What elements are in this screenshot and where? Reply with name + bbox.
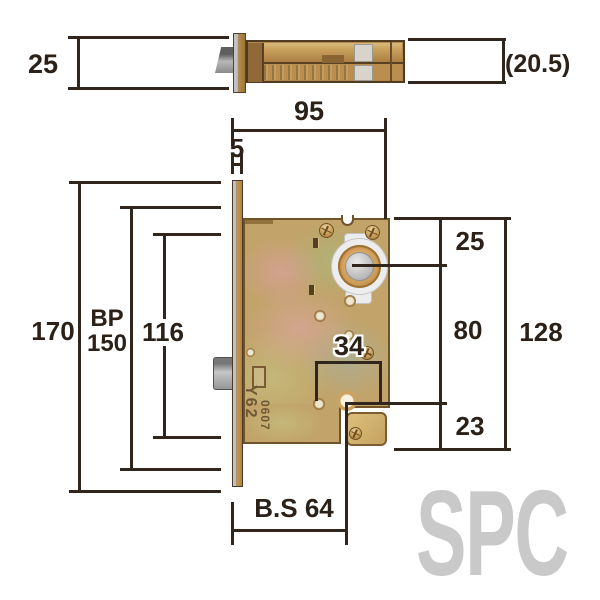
dim-backset-tick-left [231,502,234,545]
dim-right-tick-bottom [394,448,511,451]
dim-bp-tick-bottom [120,468,221,471]
dim-hub-center-line [346,402,447,405]
dim-right-outer-line [504,217,507,451]
dim-hole-spacing-label: 34 [326,332,372,360]
dim-total-height-label: 170 [29,318,77,345]
faceplate-front-view [232,180,243,487]
lock-dimension-diagram: 25 (20.5) [0,0,600,600]
dim-cylinder-center-line [352,264,447,267]
body-white-segment-top [354,44,373,62]
brand-watermark: SPC [416,463,568,600]
dim-backset-drop-line [345,402,348,545]
dim-depth-line [232,129,387,132]
body-end-seam [390,42,392,81]
dim-body-thickness-label: (20.5) [505,51,585,77]
body-step-notch [322,55,344,63]
dim-depth-tick-right [384,118,387,219]
dim-case-height-tick-top [153,233,221,236]
dim-body-thickness-ext-bottom [408,81,506,84]
dim-plate-height-label: 25 [20,50,66,78]
pin-hole-1 [344,295,356,307]
dim-bp-label: BP [84,306,130,331]
stamp-model-text: Y62 [241,385,259,419]
dim-plate-height-ext-bottom [68,87,229,90]
stamp-serial-text: 0607 [258,400,272,431]
dim-top-to-cylinder-label: 25 [448,228,492,255]
dim-backset-line [232,529,347,532]
dim-right-tick-top [394,217,511,220]
dim-hub-to-bottom-label: 23 [448,413,492,440]
body-left-block [248,43,264,82]
square-cutout-upper [313,238,319,248]
dim-plate-height-line [77,36,80,90]
square-cutout-lower [309,285,315,295]
dim-right-span-label: 128 [512,319,570,346]
dim-bp-value: 150 [84,331,130,356]
pin-hole-2 [314,310,326,322]
dim-depth-label: 95 [283,97,335,125]
latch-bolt-front-view [213,357,234,390]
body-white-segment-bottom [354,65,373,81]
dim-total-height-line [78,182,81,493]
pin-hole-left [246,348,255,357]
dim-case-height-label: 116 [138,319,188,346]
case-top-lip [245,220,273,224]
dim-plate-height-ext-top [68,36,229,39]
dim-cylinder-to-hub-label: 80 [446,317,490,344]
dim-total-height-tick-bottom [69,490,221,493]
dim-right-inner-line [439,217,442,451]
dim-bp-line [130,206,133,471]
dim-hole-spacing-line [316,361,382,364]
faceplate-top-view [233,33,246,93]
dim-hole-spacing-tick-left [315,361,318,401]
lock-body-top-view [246,40,405,83]
dim-total-height-tick-top [69,181,221,184]
dim-hole-spacing-tick-right [379,361,382,405]
dim-bp-tick-top [120,206,221,209]
dim-offset-crossbar [231,163,243,166]
dim-case-height-tick-bottom [153,436,221,439]
dim-body-thickness-ext-top [408,38,506,41]
body-seam-texture [264,65,352,80]
dim-offset-label: 5 [228,135,246,162]
dim-backset-label: B.S 64 [244,495,344,522]
